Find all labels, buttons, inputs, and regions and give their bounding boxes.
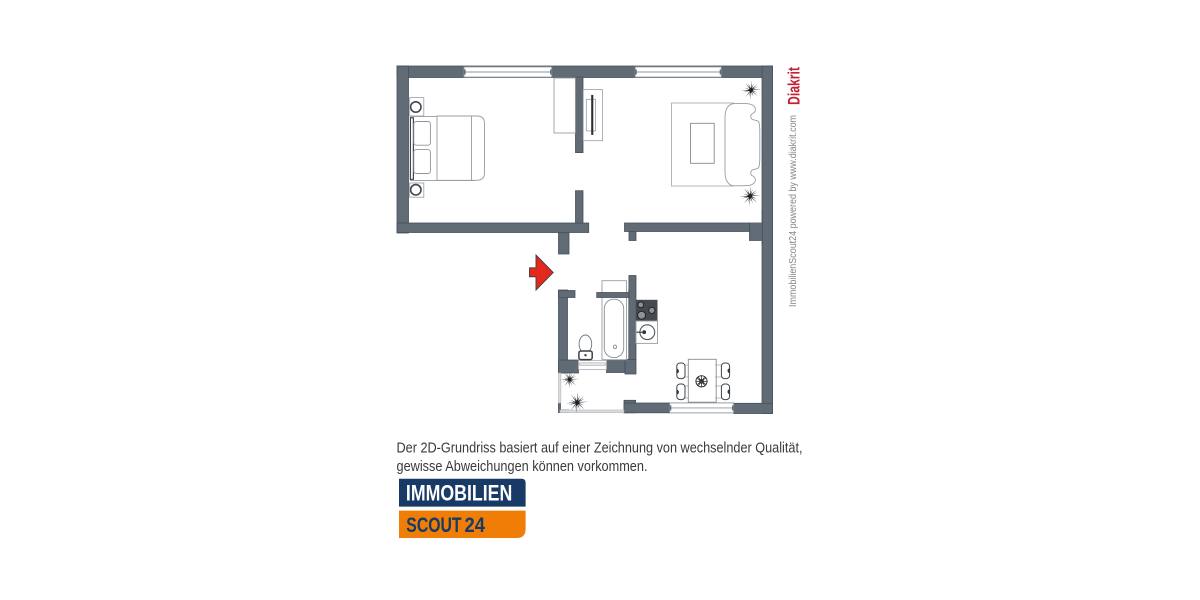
svg-text:24: 24 [465,513,486,537]
svg-text:IMMOBILIEN: IMMOBILIEN [406,480,512,505]
svg-text:SCOUT: SCOUT [406,513,461,537]
svg-text:ImmobilienScout24 powered by w: ImmobilienScout24 powered by www.diakrit… [787,115,799,307]
svg-text:gewisse Abweichungen können vo: gewisse Abweichungen können vorkommen. [397,459,648,475]
svg-text:Diakrit: Diakrit [785,67,803,105]
svg-text:Der 2D-Grundriss basiert auf e: Der 2D-Grundriss basiert auf einer Zeich… [397,441,803,457]
